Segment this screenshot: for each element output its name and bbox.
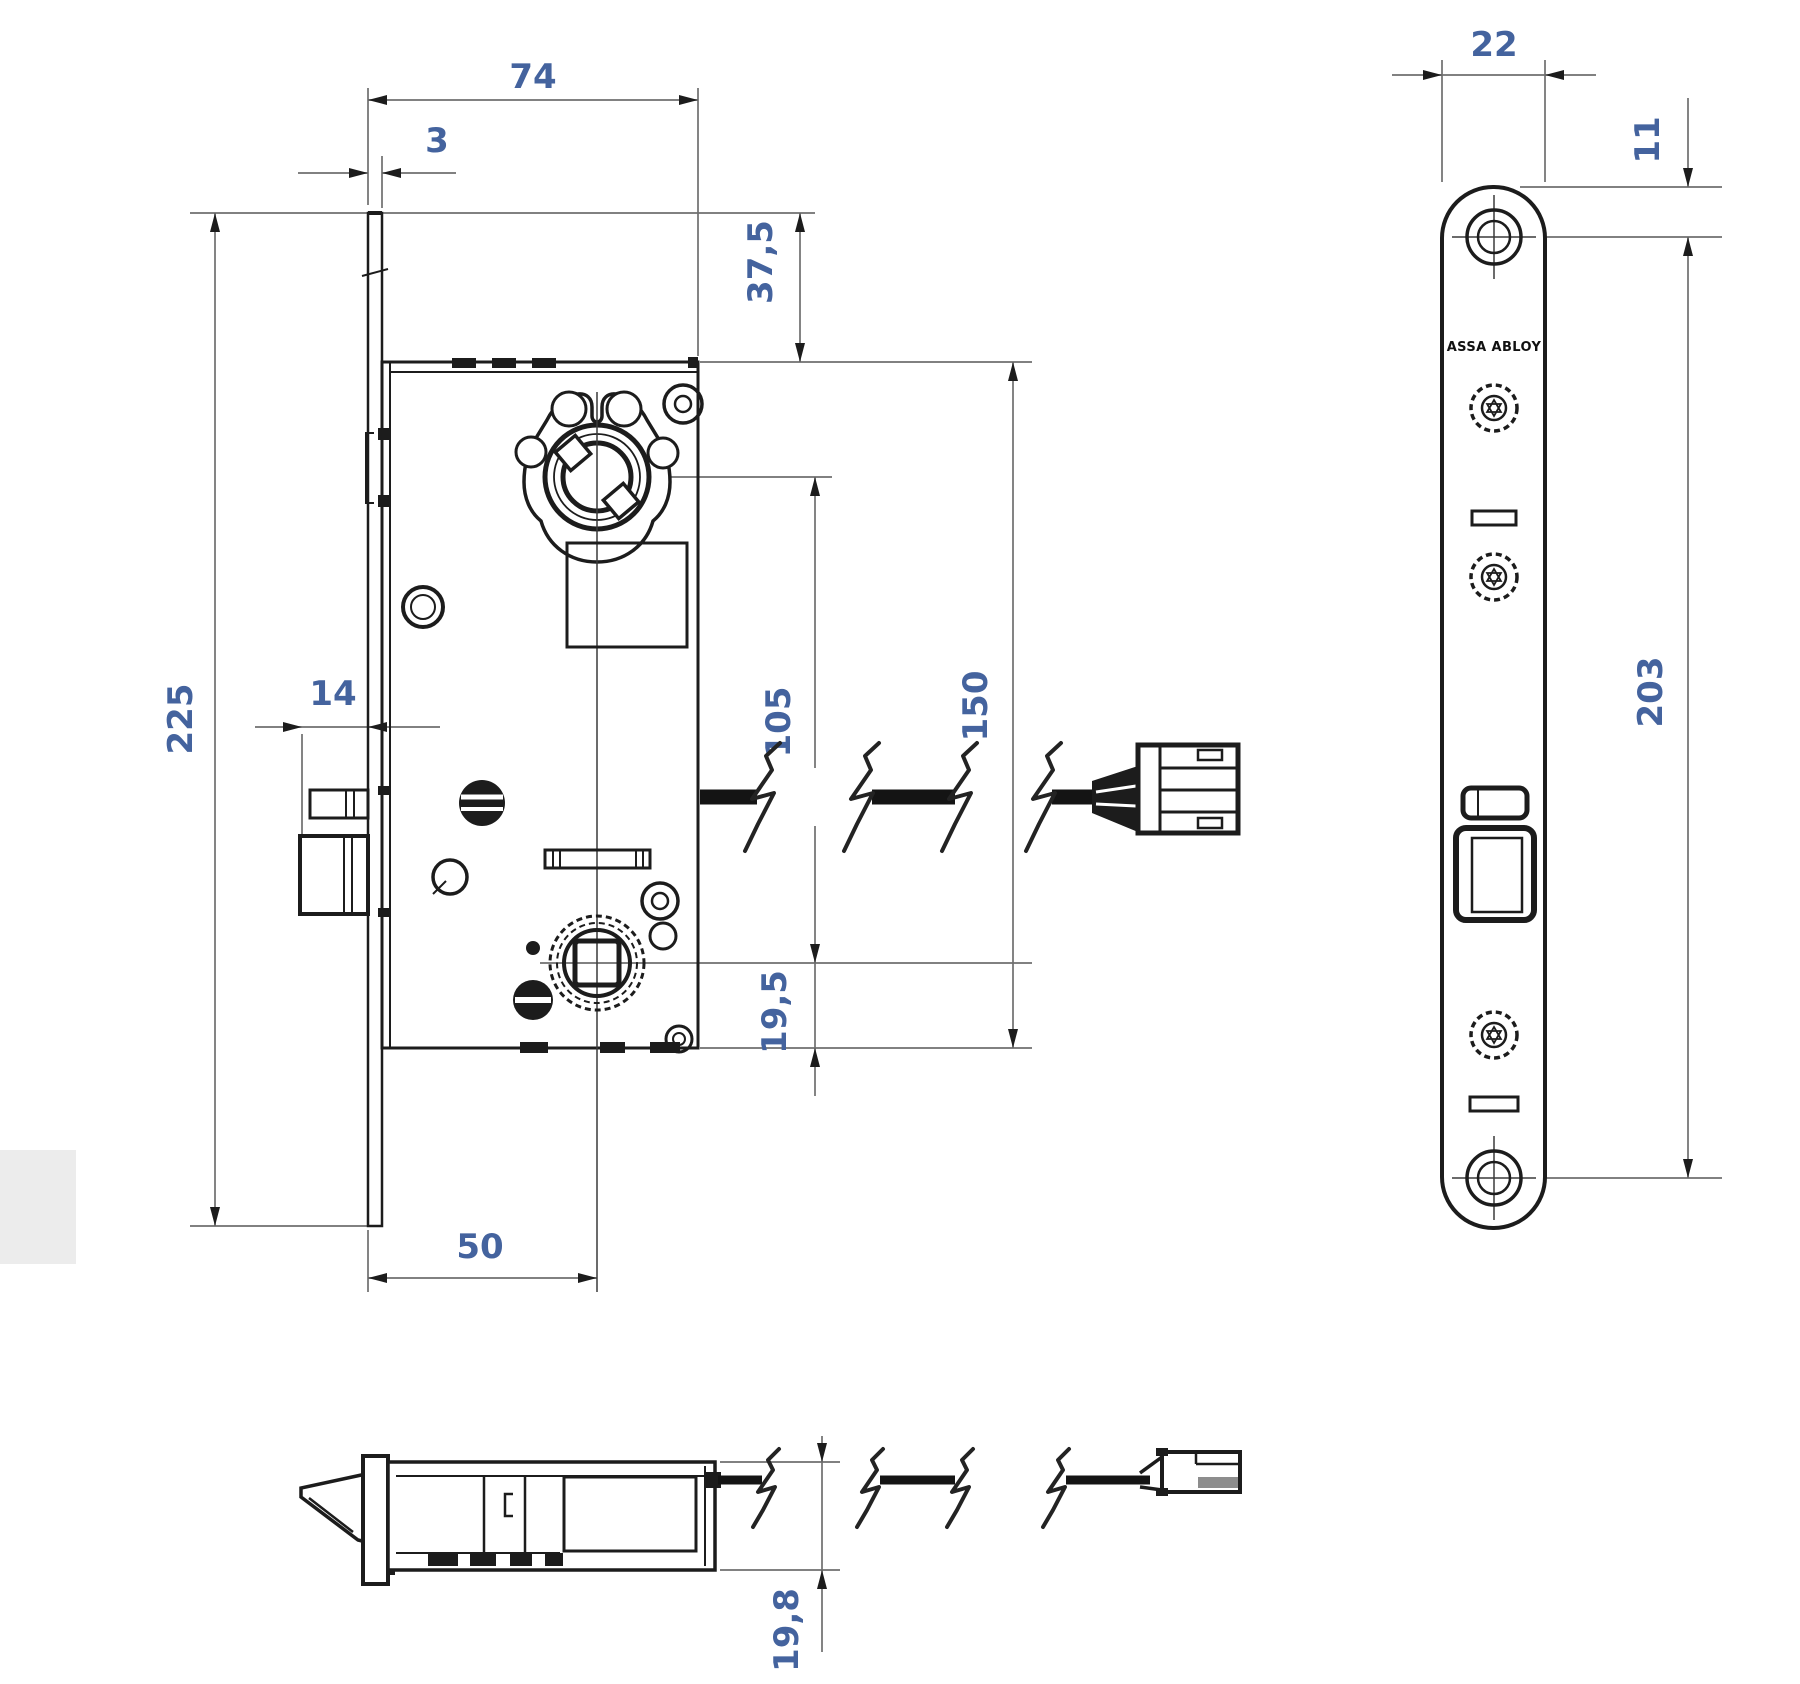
hub-hole-top-left xyxy=(552,392,586,426)
case-bottom-view xyxy=(388,1462,715,1570)
dim-label-50: 50 xyxy=(456,1227,503,1267)
hub-hole-top-right xyxy=(607,392,641,426)
dim-label-3: 3 xyxy=(425,121,449,161)
dim-label-203: 203 xyxy=(1631,657,1671,728)
dim-label-14: 14 xyxy=(309,674,356,714)
scan-artifact-block xyxy=(0,1150,76,1264)
dim-label-105: 105 xyxy=(759,687,799,758)
hub-hole-left xyxy=(516,437,546,467)
brand-logo: ASSA ABLOY xyxy=(1447,340,1542,355)
slotted-screw-upper xyxy=(459,780,505,826)
dim-label-19-5: 19,5 xyxy=(755,970,795,1054)
dim-label-11: 11 xyxy=(1628,116,1668,163)
slotted-screw-lower xyxy=(513,980,553,1020)
dim-label-150: 150 xyxy=(956,671,996,742)
dim-label-22: 22 xyxy=(1470,25,1517,65)
dim-label-37-5: 37,5 xyxy=(741,220,781,304)
hub-hole-right xyxy=(648,438,678,468)
locating-pin xyxy=(526,941,540,955)
dim-label-225: 225 xyxy=(161,684,201,755)
lock-dimension-drawing: 74 3 225 37,5 14 xyxy=(0,0,1800,1684)
dim-label-19-8: 19,8 xyxy=(767,1588,807,1672)
dim-label-74: 74 xyxy=(509,57,556,97)
